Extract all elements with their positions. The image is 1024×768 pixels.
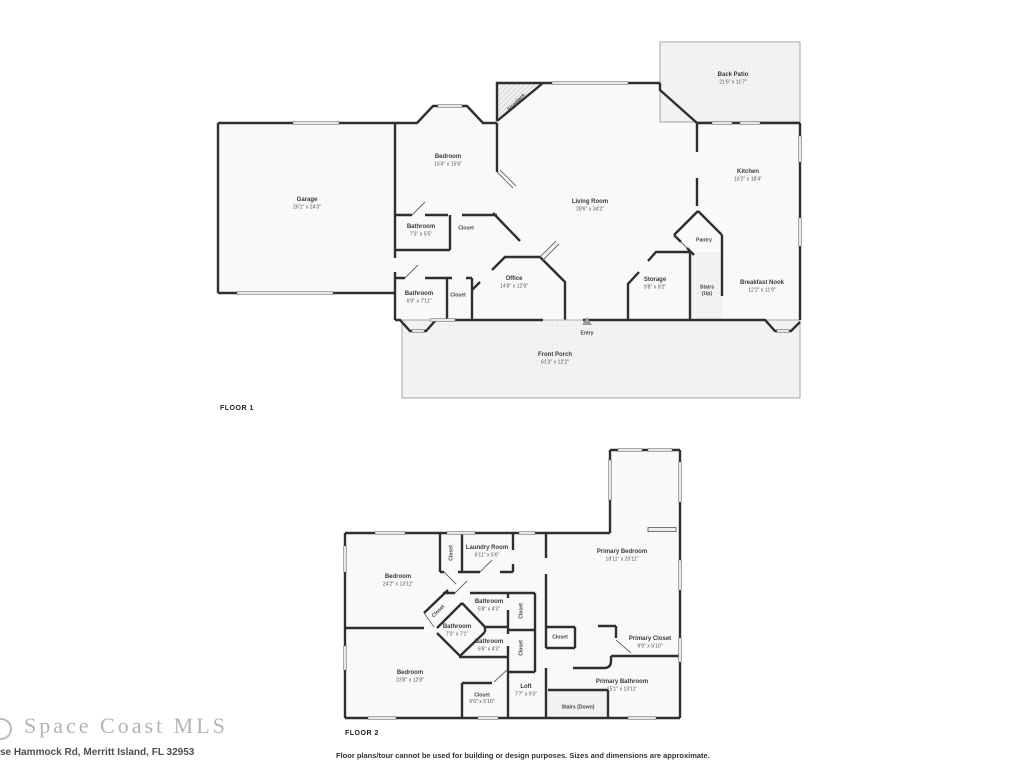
room-label-closet-strip1: Closet xyxy=(518,603,524,619)
room-label-office: Office14'8" x 12'9" xyxy=(500,275,528,289)
room-label-living-room: Living Room28'6" x 34'2" xyxy=(572,198,608,212)
room-label-storage: Storage9'8" x 9'2" xyxy=(644,276,666,290)
room-label-bathroom-a: Bathroom6'8" x 4'3" xyxy=(475,598,503,612)
room-label-bedroom1-f2: Bedroom24'2" x 13'11" xyxy=(383,573,413,587)
room-label-stairs-down: Stairs (Down) xyxy=(562,704,595,710)
room-label-pantry: Pantry xyxy=(696,237,712,243)
room-label-bathroom2-f1: Bathroom6'9" x 7'11" xyxy=(405,290,433,304)
room-label-bathroom-b: Bathroom7'3" x 7'1" xyxy=(443,623,471,637)
room-label-bedroom-f1: Bedroom15'4" x 15'6" xyxy=(434,153,462,167)
room-label-primary-bedroom: Primary Bedroom18'11" x 20'11" xyxy=(597,548,647,562)
room-label-loft: Loft7'7" x 9'3" xyxy=(515,683,537,697)
room-label-stairs-up: Stairs(Up) xyxy=(700,284,714,297)
watermark-logo: Space Coast MLS xyxy=(24,713,228,739)
room-label-primary-bathroom: Primary Bathroom15'1" x 13'11" xyxy=(596,678,648,692)
floorplan-drawing xyxy=(0,0,1024,768)
floor2-label: FLOOR 2 xyxy=(345,730,379,737)
floor1-room-fills xyxy=(218,42,800,398)
primary-bedroom-ledge xyxy=(648,528,676,532)
room-label-bathroom1-f1: Bathroom7'3" x 5'5" xyxy=(407,223,435,237)
room-label-garage: Garage26'1" x 24'3" xyxy=(293,196,321,210)
floor1-label: FLOOR 1 xyxy=(220,405,254,412)
room-label-kitchen: Kitchen16'2" x 18'4" xyxy=(734,168,762,182)
room-label-laundry-room: Laundry Room6'11" x 5'6" xyxy=(466,544,508,558)
room-label-primary-closet: Primary Closet9'9" x 5'10" xyxy=(629,635,671,649)
room-label-closet2-f1: Closet xyxy=(450,292,466,298)
room-label-front-porch: Front Porch61'3" x 12'2" xyxy=(538,351,572,365)
room-label-closet1-f1: Closet xyxy=(458,225,474,231)
room-label-entry: Entry xyxy=(580,330,593,336)
room-label-bathroom-c: Bathroom6'6" x 4'3" xyxy=(475,638,503,652)
floorplan-page: Garage26'1" x 24'3" Bedroom15'4" x 15'6"… xyxy=(0,0,1024,768)
room-label-closet-laundry: Closet xyxy=(448,545,454,561)
floor1-plan xyxy=(152,0,801,398)
disclaimer-text: Floor plans/tour cannot be used for buil… xyxy=(336,751,710,760)
address-text: se Hammock Rd, Merritt Island, FL 32953 xyxy=(0,747,194,758)
room-label-closet-hall: Closet xyxy=(552,634,568,640)
front-porch-area xyxy=(402,320,800,398)
room-label-breakfast-nook: Breakfast Nook12'2" x 11'9" xyxy=(740,279,784,293)
room-label-bedroom2-f2: Bedroom23'8" x 12'8" xyxy=(396,669,424,683)
room-label-closet-strip2: Closet xyxy=(518,640,524,656)
room-label-back-patio: Back Patio21'6" x 11'7" xyxy=(718,71,749,85)
room-label-closet-bottom: Closet6'6" x 5'10" xyxy=(469,692,494,705)
